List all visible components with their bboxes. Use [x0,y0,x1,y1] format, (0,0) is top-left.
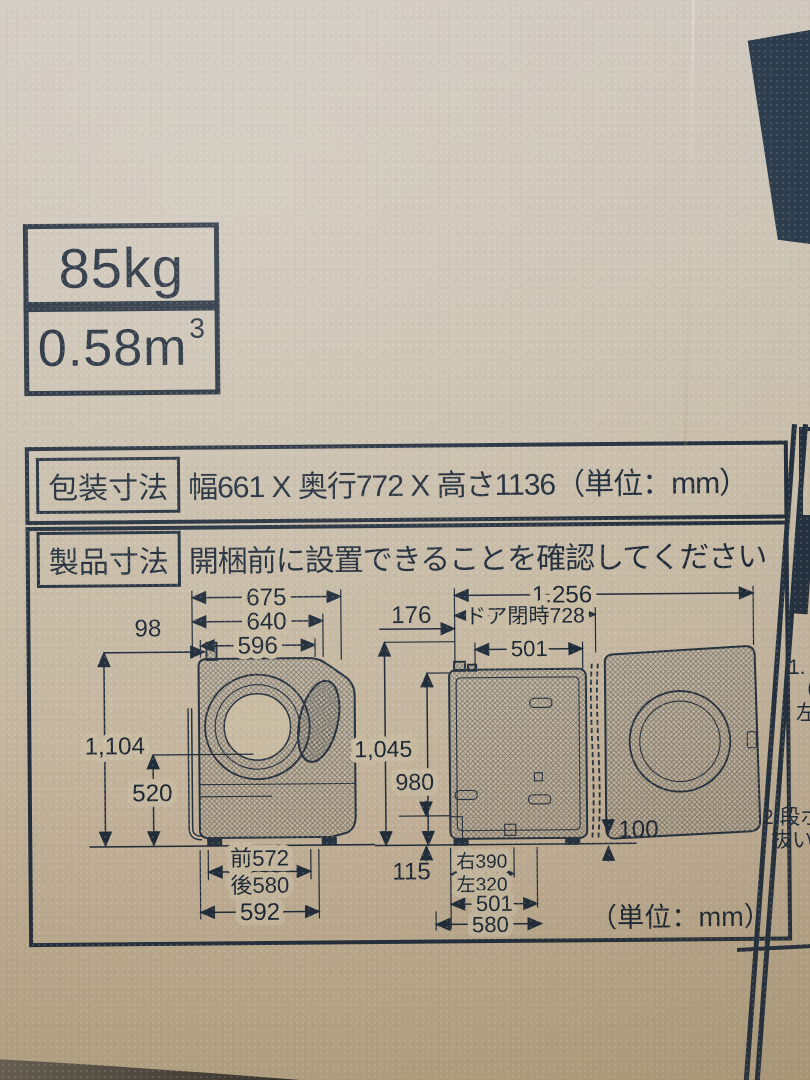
dim-596: 596 [237,632,277,659]
dim-115: 115 [392,858,431,885]
dim-1045: 1,045 [354,736,412,763]
dim-door-closed-728: ドア閉時728 [465,604,585,628]
dim-right-390: 右390 [456,851,507,873]
dim-rear-580: 後580 [230,873,289,899]
packaging-dimensions-row: 包装寸法 幅661 X 奥行772 X 高さ1136（単位：mm） [25,440,789,525]
hinge-line-1 [591,664,594,839]
floor-line-right [375,843,636,845]
rear-inlet-bump-1 [454,662,465,671]
note2-fragment-1: 2.段ボー [762,806,810,829]
note1-fragment-2: （ [794,679,810,702]
volume-label: 0.58m [38,318,188,379]
note1-fragment-1: 1. [788,656,810,679]
unit-note: （単位：mm） [590,901,771,934]
dim-592: 592 [240,899,280,926]
washer-rear-body [449,669,587,839]
door-open-view-diagram: 1,256 176 ドア閉時728 501 1,045 980 115 100 … [353,583,771,939]
adjacent-panel-note-2: 2.段ボー 抜い [762,806,810,852]
open-door-panel [605,646,761,839]
product-dimensions-headline: 開梱前に設置できることを確認してください [189,532,767,581]
door-window [224,693,291,760]
dim-98: 98 [134,615,161,642]
volume-box: 0.58m3 [24,300,221,396]
dim-501-top: 501 [511,636,548,661]
dim-front-572: 前572 [230,845,289,871]
foot-left [207,838,222,846]
weight-box: 85kg [23,222,220,312]
packaging-dimensions-label: 包装寸法 [36,457,180,514]
ref-1045 [384,642,454,643]
dim-1104: 1,104 [84,733,145,761]
dim-100: 100 [618,816,658,843]
weight-label: 85kg [58,234,184,300]
product-dimensions-header: 製品寸法 開梱前に設置できることを確認してください [30,525,785,590]
adjacent-panel-border-fragment [799,427,810,519]
foot-right [322,837,337,845]
dim-980-line [427,673,429,845]
note1-fragment-3: 左 [796,702,810,725]
volume-exponent: 3 [189,313,206,345]
dim-520: 520 [132,780,172,807]
side-view-diagram: 675 640 596 98 1,104 520 前572 後580 592 [83,583,376,927]
dim-980: 980 [395,769,434,795]
hinge-line-2 [597,664,600,839]
adjacent-panel-note-1: 1. （ 左 [784,656,810,725]
dim-98-line [104,652,205,653]
dimension-diagrams: 675 640 596 98 1,104 520 前572 後580 592 [34,583,781,941]
product-dimensions-label: 製品寸法 [37,531,181,588]
dim-176: 176 [391,602,431,629]
packaging-dimensions-value: 幅661 X 奥行772 X 高さ1136（単位：mm） [188,458,748,507]
dim-1256-line [454,593,753,596]
product-dimensions-panel: 製品寸法 開梱前に設置できることを確認してください [25,520,792,947]
dim-580: 580 [472,912,509,937]
note2-fragment-2: 抜い [771,829,810,852]
carton-photo: 85kg 0.58m3 包装寸法 幅661 X 奥行772 X 高さ1136（単… [0,0,810,1080]
dim-640: 640 [246,608,286,635]
